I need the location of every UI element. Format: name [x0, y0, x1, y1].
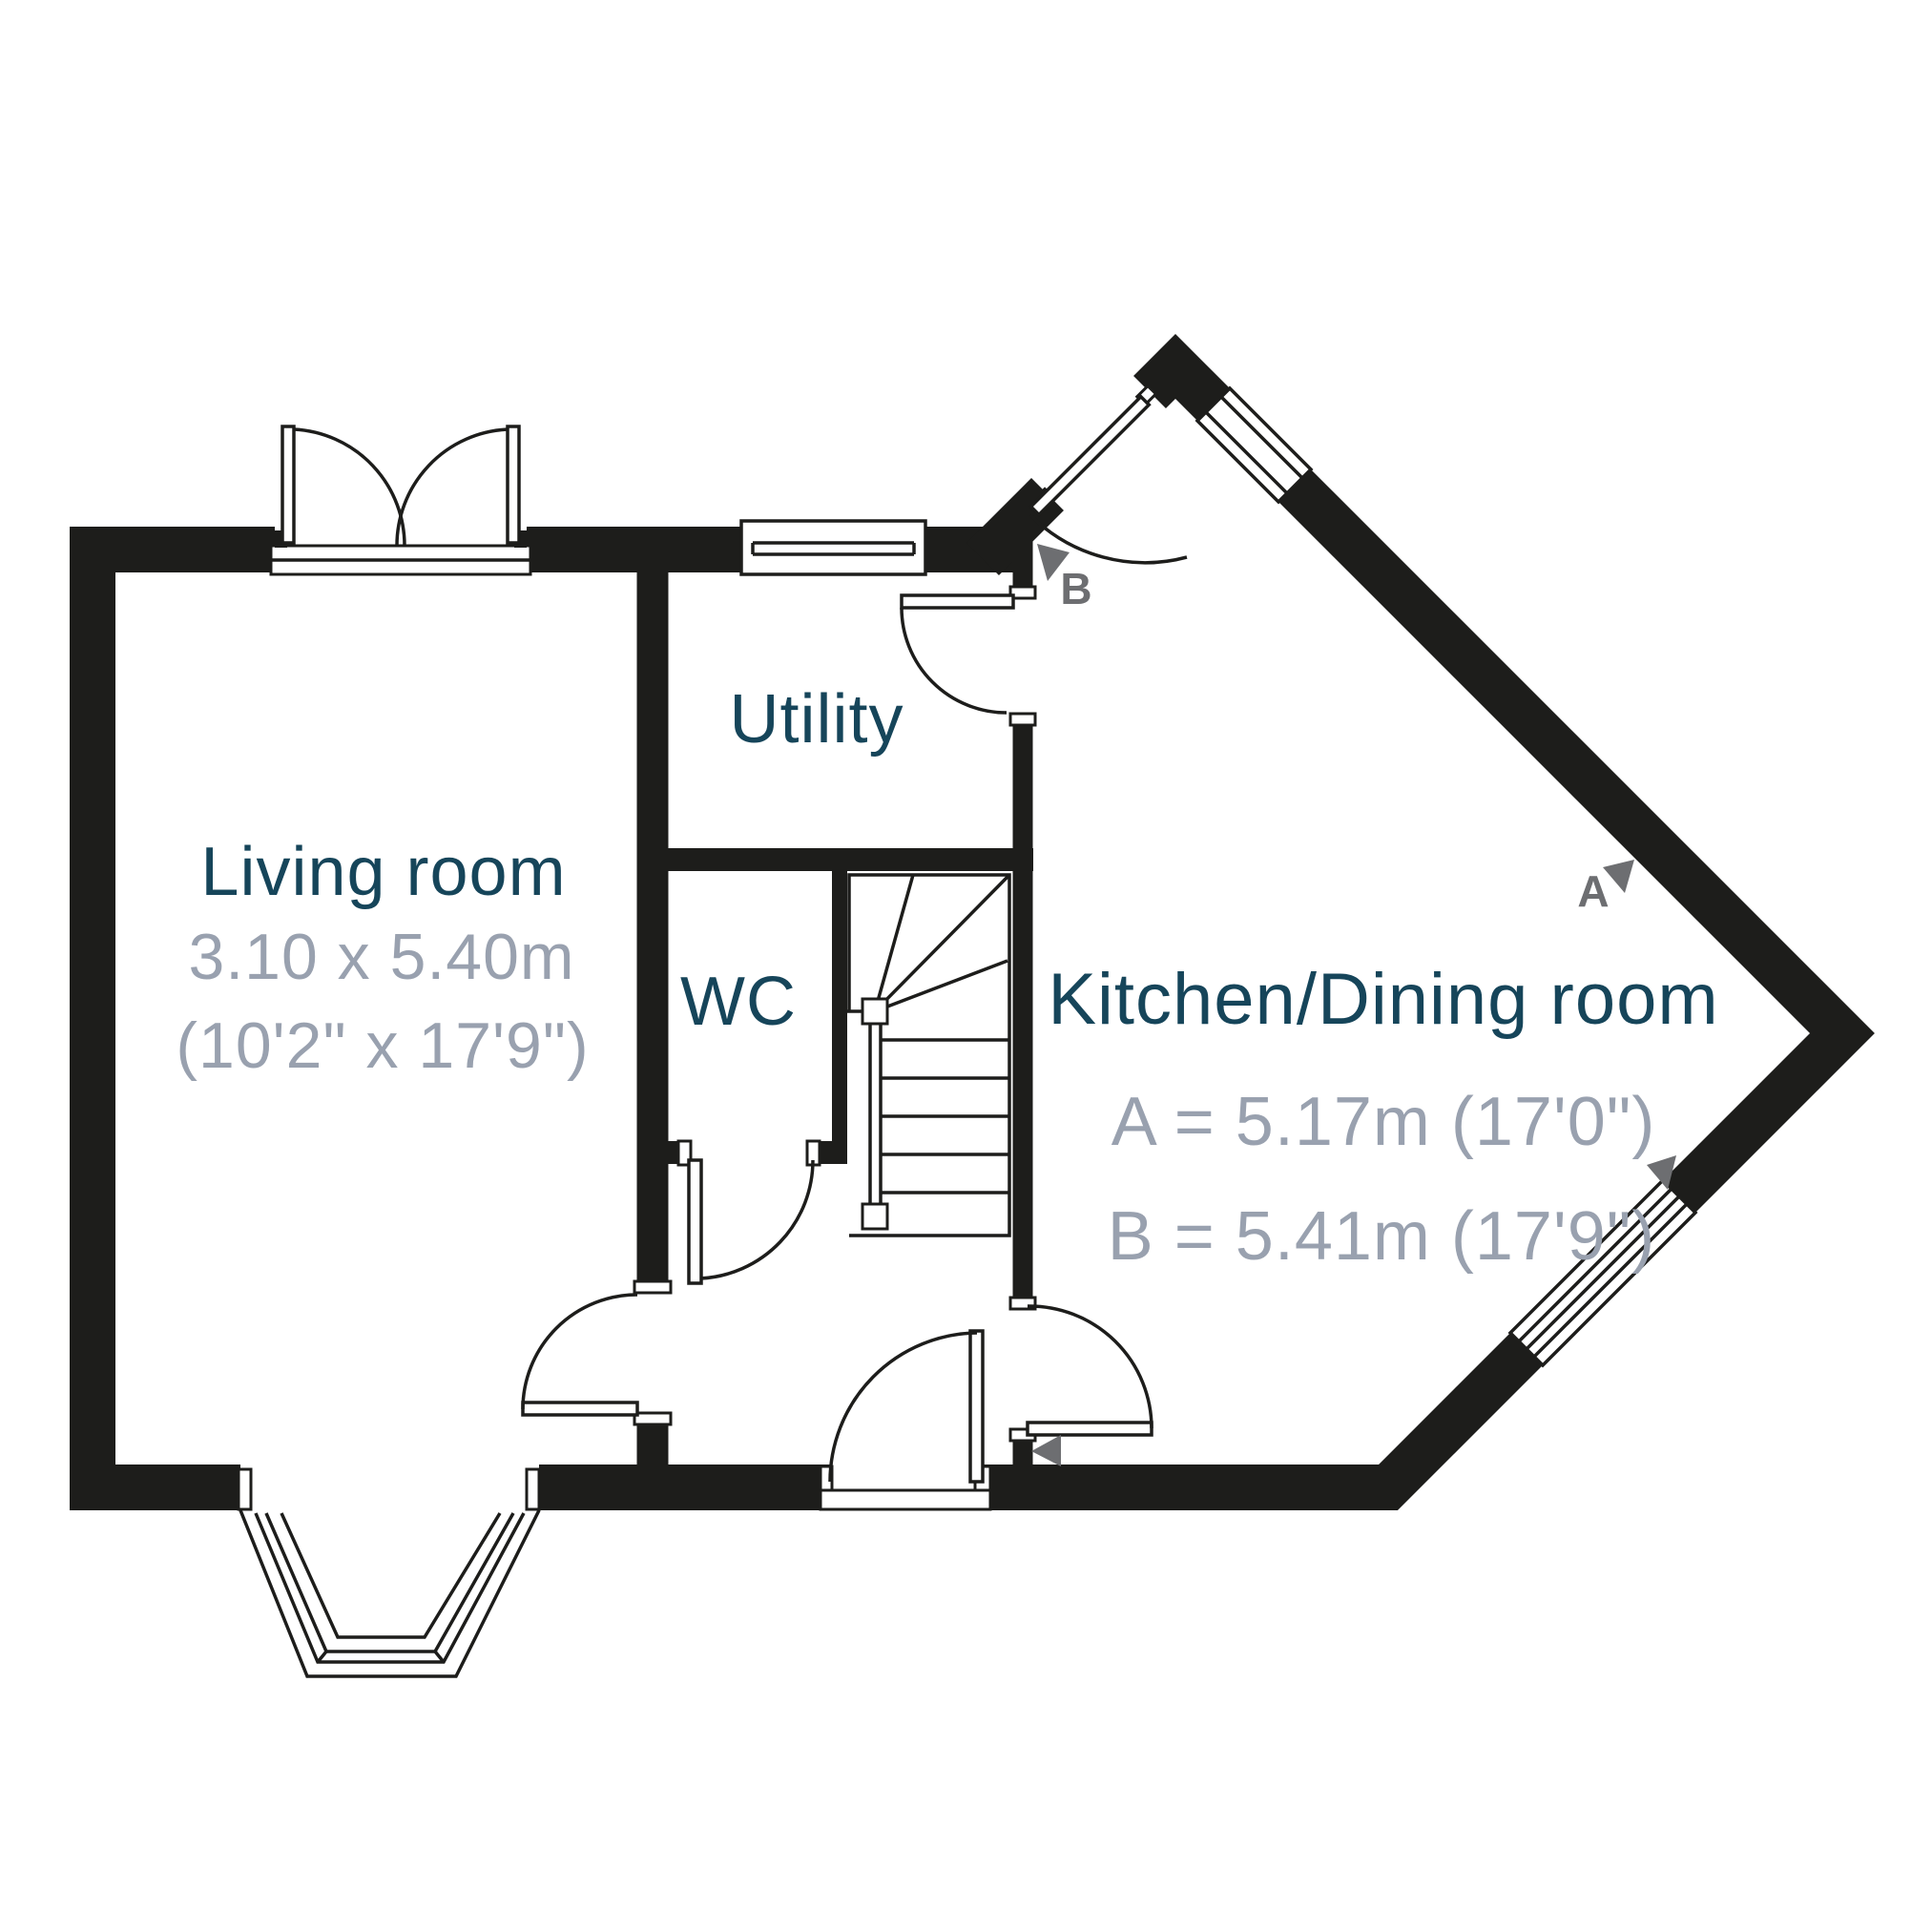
kitchen-hall-door [1010, 1298, 1152, 1441]
bay-jamb-right [527, 1469, 539, 1509]
wc-door-leaf [689, 1160, 701, 1283]
wall-diagonal-bottom-right [983, 1349, 1527, 1487]
wc-door [678, 1141, 820, 1283]
entrance-door [1030, 385, 1187, 562]
marker-b-label: B [1060, 564, 1091, 613]
living-room-dim-metric: 3.10 x 5.40m [188, 921, 574, 993]
living-room-door [523, 1281, 671, 1424]
apex-window-frame [1197, 388, 1311, 502]
stairs-newel-bottom [862, 1204, 887, 1229]
kitchen-label: Kitchen/Dining room [1048, 959, 1718, 1040]
bay-window [239, 1469, 539, 1676]
staircase [847, 875, 1009, 1236]
french-door-leaf-left [282, 426, 294, 543]
utility-label: Utility [730, 681, 904, 758]
floor-plan-svg: Living room 3.10 x 5.40m (10'2" x 17'9")… [0, 0, 1932, 1932]
living-door-arc [523, 1295, 637, 1409]
kitchen-door-leaf [1028, 1423, 1152, 1435]
living-door-cap-lower [634, 1413, 671, 1424]
back-door-leaf [970, 1331, 983, 1482]
floor-plan-page: Living room 3.10 x 5.40m (10'2" x 17'9")… [0, 0, 1932, 1932]
kitchen-dim-b: B = 5.41m (17'9") [1108, 1198, 1656, 1275]
back-door-arc [830, 1333, 977, 1482]
utility-door-cap-lower [1010, 714, 1035, 725]
wall-apex-and-right-diagonal [1150, 366, 1842, 1201]
french-doors [271, 426, 530, 574]
living-door-leaf [523, 1402, 637, 1415]
kitchen-dim-a: A = 5.17m (17'0") [1111, 1084, 1656, 1160]
stairs-outline [849, 875, 1009, 1236]
utility-door [902, 587, 1035, 725]
back-door [821, 1331, 990, 1509]
french-door-arc-left [294, 429, 405, 547]
marker-a-label: A [1577, 866, 1609, 916]
utility-window-frame [741, 521, 925, 574]
french-door-arc-right [397, 429, 508, 547]
utility-door-leaf [902, 595, 1013, 608]
living-room-dim-imperial: (10'2" x 17'9") [176, 1009, 589, 1082]
living-room-label: Living room [200, 834, 566, 910]
entrance-door-leaf [1030, 397, 1149, 515]
back-door-threshold [821, 1490, 990, 1509]
kitchen-door-arc [1028, 1306, 1152, 1428]
stairs-winder-3 [875, 961, 1008, 1011]
apex-window [1197, 388, 1311, 502]
stairs-newel-top [862, 999, 887, 1024]
bay-jamb-left [239, 1469, 251, 1509]
wc-label: WC [680, 964, 797, 1040]
utility-window [741, 521, 925, 574]
living-door-cap-upper [634, 1281, 671, 1293]
utility-door-arc [902, 608, 1007, 713]
bay-glazing-outer [256, 1513, 524, 1662]
french-door-leaf-right [508, 426, 519, 543]
wc-door-arc [700, 1160, 813, 1278]
